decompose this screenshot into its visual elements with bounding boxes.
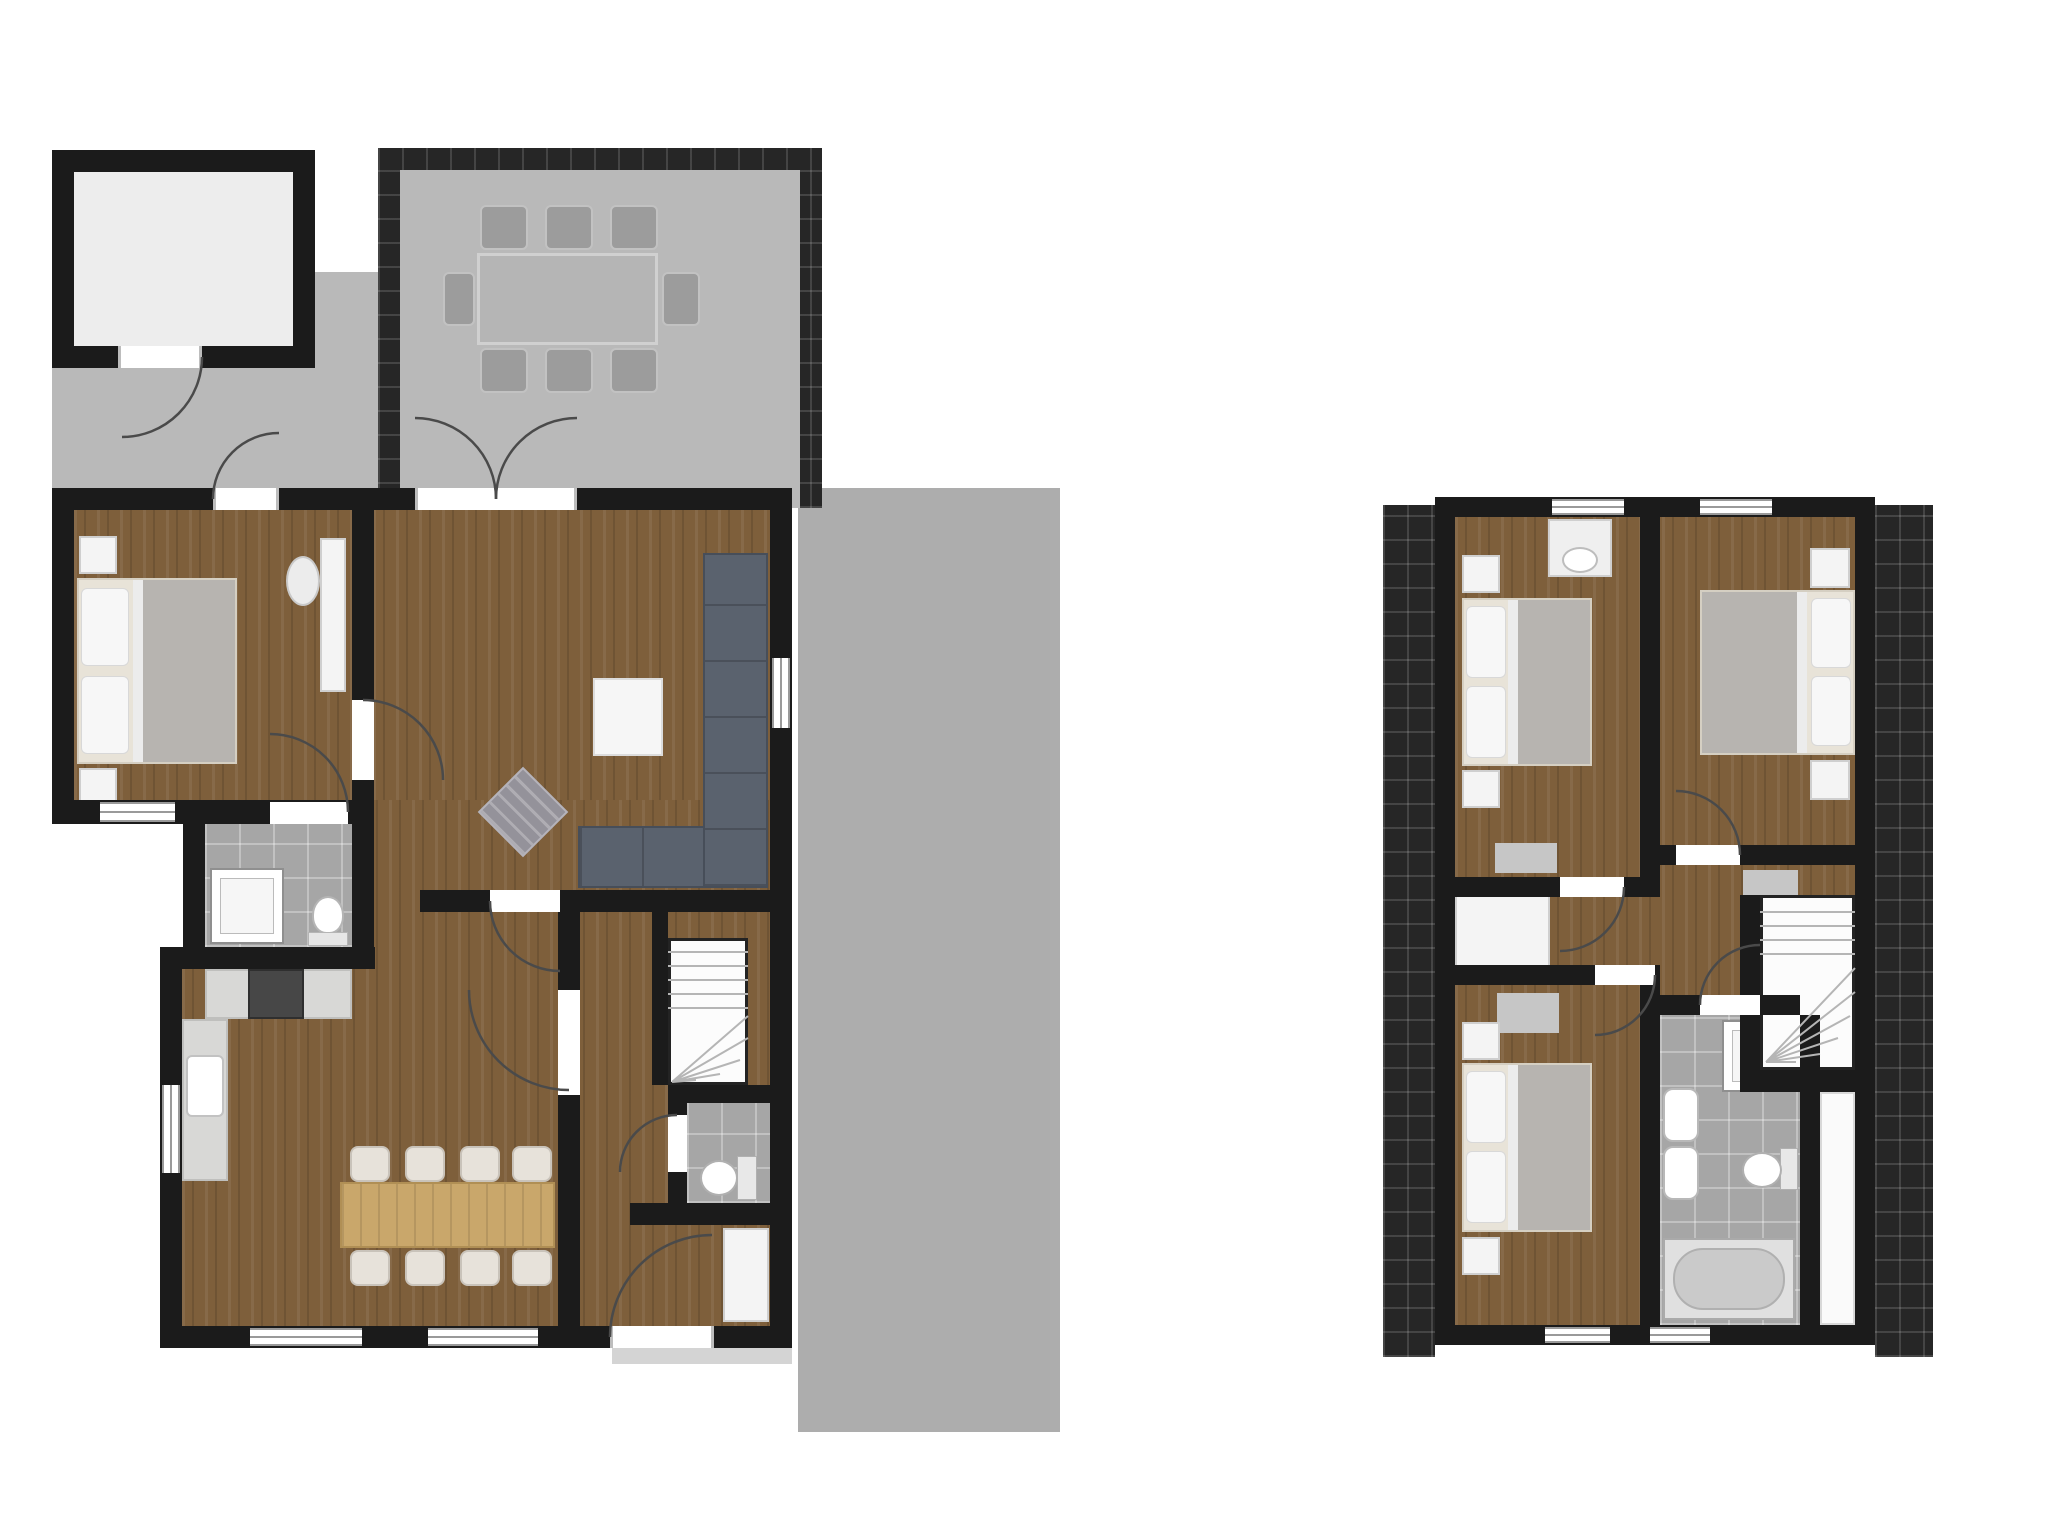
window-living-east bbox=[772, 658, 790, 728]
pillow bbox=[81, 588, 129, 666]
stove bbox=[248, 969, 304, 1019]
wall-living-bottom-b bbox=[560, 890, 770, 912]
dining-table bbox=[340, 1182, 555, 1248]
window-dining-south-2 bbox=[428, 1328, 538, 1346]
corner-sofa-chaise bbox=[578, 826, 705, 888]
double-bed bbox=[1462, 598, 1592, 766]
nightstand bbox=[1810, 548, 1850, 588]
blanket bbox=[1508, 600, 1590, 764]
desk bbox=[320, 538, 346, 692]
toilet-bowl bbox=[1742, 1152, 1782, 1188]
floorplan-canvas bbox=[0, 0, 2048, 1536]
wall-hall-dining-b bbox=[558, 1095, 580, 1326]
wall-toilet-bottom bbox=[630, 1203, 770, 1225]
upper-wall-top bbox=[1435, 497, 1875, 517]
desk-chair bbox=[286, 556, 320, 606]
wall-divider-upper bbox=[352, 510, 374, 700]
roof-band-right bbox=[1875, 505, 1933, 1357]
wash-basin bbox=[1548, 519, 1612, 577]
wall-toilet-left-b bbox=[668, 1172, 687, 1203]
upper-wall-right bbox=[1855, 497, 1875, 1345]
coffee-table bbox=[593, 678, 663, 756]
upper-wall-left bbox=[1435, 497, 1455, 1345]
bathtub-basin bbox=[1673, 1248, 1785, 1310]
door-opening-yard bbox=[213, 488, 279, 510]
upper-stairs-bottom bbox=[1740, 1070, 1855, 1092]
pillow bbox=[81, 676, 129, 754]
wall-left-bedroom bbox=[52, 488, 74, 812]
roof-band-left bbox=[1383, 505, 1435, 1357]
upper-bath-top-a bbox=[1660, 995, 1700, 1015]
nightstand bbox=[79, 536, 117, 574]
wall-toilet-left-a bbox=[668, 1085, 687, 1115]
outdoor-chair bbox=[610, 348, 658, 393]
door-mat bbox=[1497, 993, 1559, 1033]
outdoor-chair bbox=[545, 348, 593, 393]
outdoor-chair bbox=[545, 205, 593, 250]
driveway bbox=[798, 488, 1060, 1432]
storage-strip bbox=[1820, 1092, 1855, 1325]
nightstand bbox=[1462, 770, 1500, 808]
nightstand bbox=[1462, 1237, 1500, 1275]
upper-b1-bottom-a bbox=[1455, 877, 1560, 897]
wall-left-bathroom bbox=[183, 800, 205, 969]
shower bbox=[210, 868, 284, 944]
kitchen-sink bbox=[186, 1055, 224, 1117]
outdoor-chair bbox=[480, 205, 528, 250]
wall-divider-lower bbox=[352, 780, 374, 969]
upper-bath-right bbox=[1800, 1015, 1820, 1325]
pillow bbox=[1466, 606, 1506, 678]
door-opening-dining bbox=[558, 990, 580, 1095]
door-opening-terrace-french bbox=[415, 488, 577, 510]
wall-hall-dining-a bbox=[558, 912, 580, 990]
shed-interior bbox=[74, 172, 293, 346]
outdoor-table bbox=[477, 253, 658, 345]
wall-living-bottom-a bbox=[420, 890, 490, 912]
double-bed bbox=[77, 578, 237, 764]
dining-chair bbox=[405, 1250, 445, 1286]
wall-bathroom-bottom bbox=[160, 947, 375, 969]
double-bed bbox=[1462, 1063, 1592, 1232]
wall-stairs-left bbox=[652, 912, 668, 1085]
dining-chair bbox=[405, 1146, 445, 1182]
door-mat bbox=[1743, 870, 1798, 896]
toilet-bowl bbox=[312, 896, 344, 934]
dining-chair bbox=[350, 1146, 390, 1182]
outdoor-chair bbox=[443, 272, 475, 326]
upper-b2-bottom-b bbox=[1740, 845, 1855, 865]
upper-b1-bottom-b bbox=[1624, 877, 1640, 897]
dining-chair bbox=[460, 1250, 500, 1286]
dining-chair bbox=[512, 1146, 552, 1182]
blanket bbox=[1508, 1065, 1590, 1230]
door-opening-b2 bbox=[1676, 845, 1740, 865]
window-bath-south bbox=[1650, 1327, 1710, 1343]
door-opening-bathroom bbox=[270, 802, 348, 824]
pillow bbox=[1466, 1071, 1506, 1143]
pillow bbox=[1811, 676, 1851, 746]
upper-divider-b3-bath bbox=[1640, 965, 1660, 1325]
window-bedroom-south bbox=[100, 802, 175, 822]
door-opening-bath bbox=[1700, 995, 1760, 1015]
pillow bbox=[1466, 686, 1506, 758]
window-b2-north bbox=[1700, 499, 1772, 515]
door-step bbox=[612, 1348, 792, 1364]
dining-chair bbox=[512, 1250, 552, 1286]
stairs-ground bbox=[668, 938, 748, 1085]
window-b1-north bbox=[1552, 499, 1624, 515]
door-opening-living-hall bbox=[490, 890, 560, 912]
upper-divider-bedrooms bbox=[1640, 517, 1660, 897]
front-door-opening bbox=[610, 1326, 714, 1348]
toilet-tank bbox=[308, 932, 348, 946]
pillow bbox=[1811, 598, 1851, 668]
door-mat bbox=[1495, 843, 1557, 873]
window-b3-south bbox=[1545, 1327, 1610, 1343]
outdoor-chair bbox=[662, 272, 700, 326]
toilet-bowl bbox=[700, 1160, 738, 1196]
door-opening-toilet bbox=[668, 1115, 687, 1172]
hall-wardrobe bbox=[723, 1228, 769, 1322]
door-opening-b1 bbox=[1560, 877, 1624, 897]
blanket bbox=[1702, 592, 1807, 753]
shed-door-opening bbox=[118, 346, 202, 368]
bathtub bbox=[1663, 1238, 1795, 1320]
toilet-tank bbox=[1780, 1148, 1798, 1190]
paved-yard-side bbox=[315, 272, 378, 368]
toilet-tank bbox=[737, 1156, 757, 1200]
dining-chair bbox=[350, 1250, 390, 1286]
outdoor-chair bbox=[480, 348, 528, 393]
paved-yard bbox=[52, 368, 378, 508]
wall-right bbox=[770, 488, 792, 1348]
basin-bowl bbox=[1562, 547, 1598, 573]
wash-basin bbox=[1663, 1088, 1699, 1142]
upper-b3-top-a bbox=[1455, 965, 1595, 985]
blanket bbox=[133, 580, 235, 762]
pillow bbox=[1466, 1151, 1506, 1223]
door-opening-b3 bbox=[1595, 965, 1655, 985]
double-bed bbox=[1700, 590, 1855, 755]
nightstand bbox=[1810, 760, 1850, 800]
dining-chair bbox=[460, 1146, 500, 1182]
upper-b2-bottom-a bbox=[1660, 845, 1676, 865]
wash-basin bbox=[1663, 1146, 1699, 1200]
upper-stairs-left bbox=[1740, 895, 1760, 1070]
window-dining-south-1 bbox=[250, 1328, 362, 1346]
upper-bath-top-b bbox=[1760, 995, 1800, 1015]
nightstand bbox=[1462, 555, 1500, 593]
outdoor-chair bbox=[610, 205, 658, 250]
nightstand bbox=[1462, 1022, 1500, 1060]
door-opening-bedroom-hall bbox=[352, 700, 374, 780]
corner-sofa-long bbox=[703, 553, 768, 888]
window-kitchen-west bbox=[162, 1085, 180, 1173]
